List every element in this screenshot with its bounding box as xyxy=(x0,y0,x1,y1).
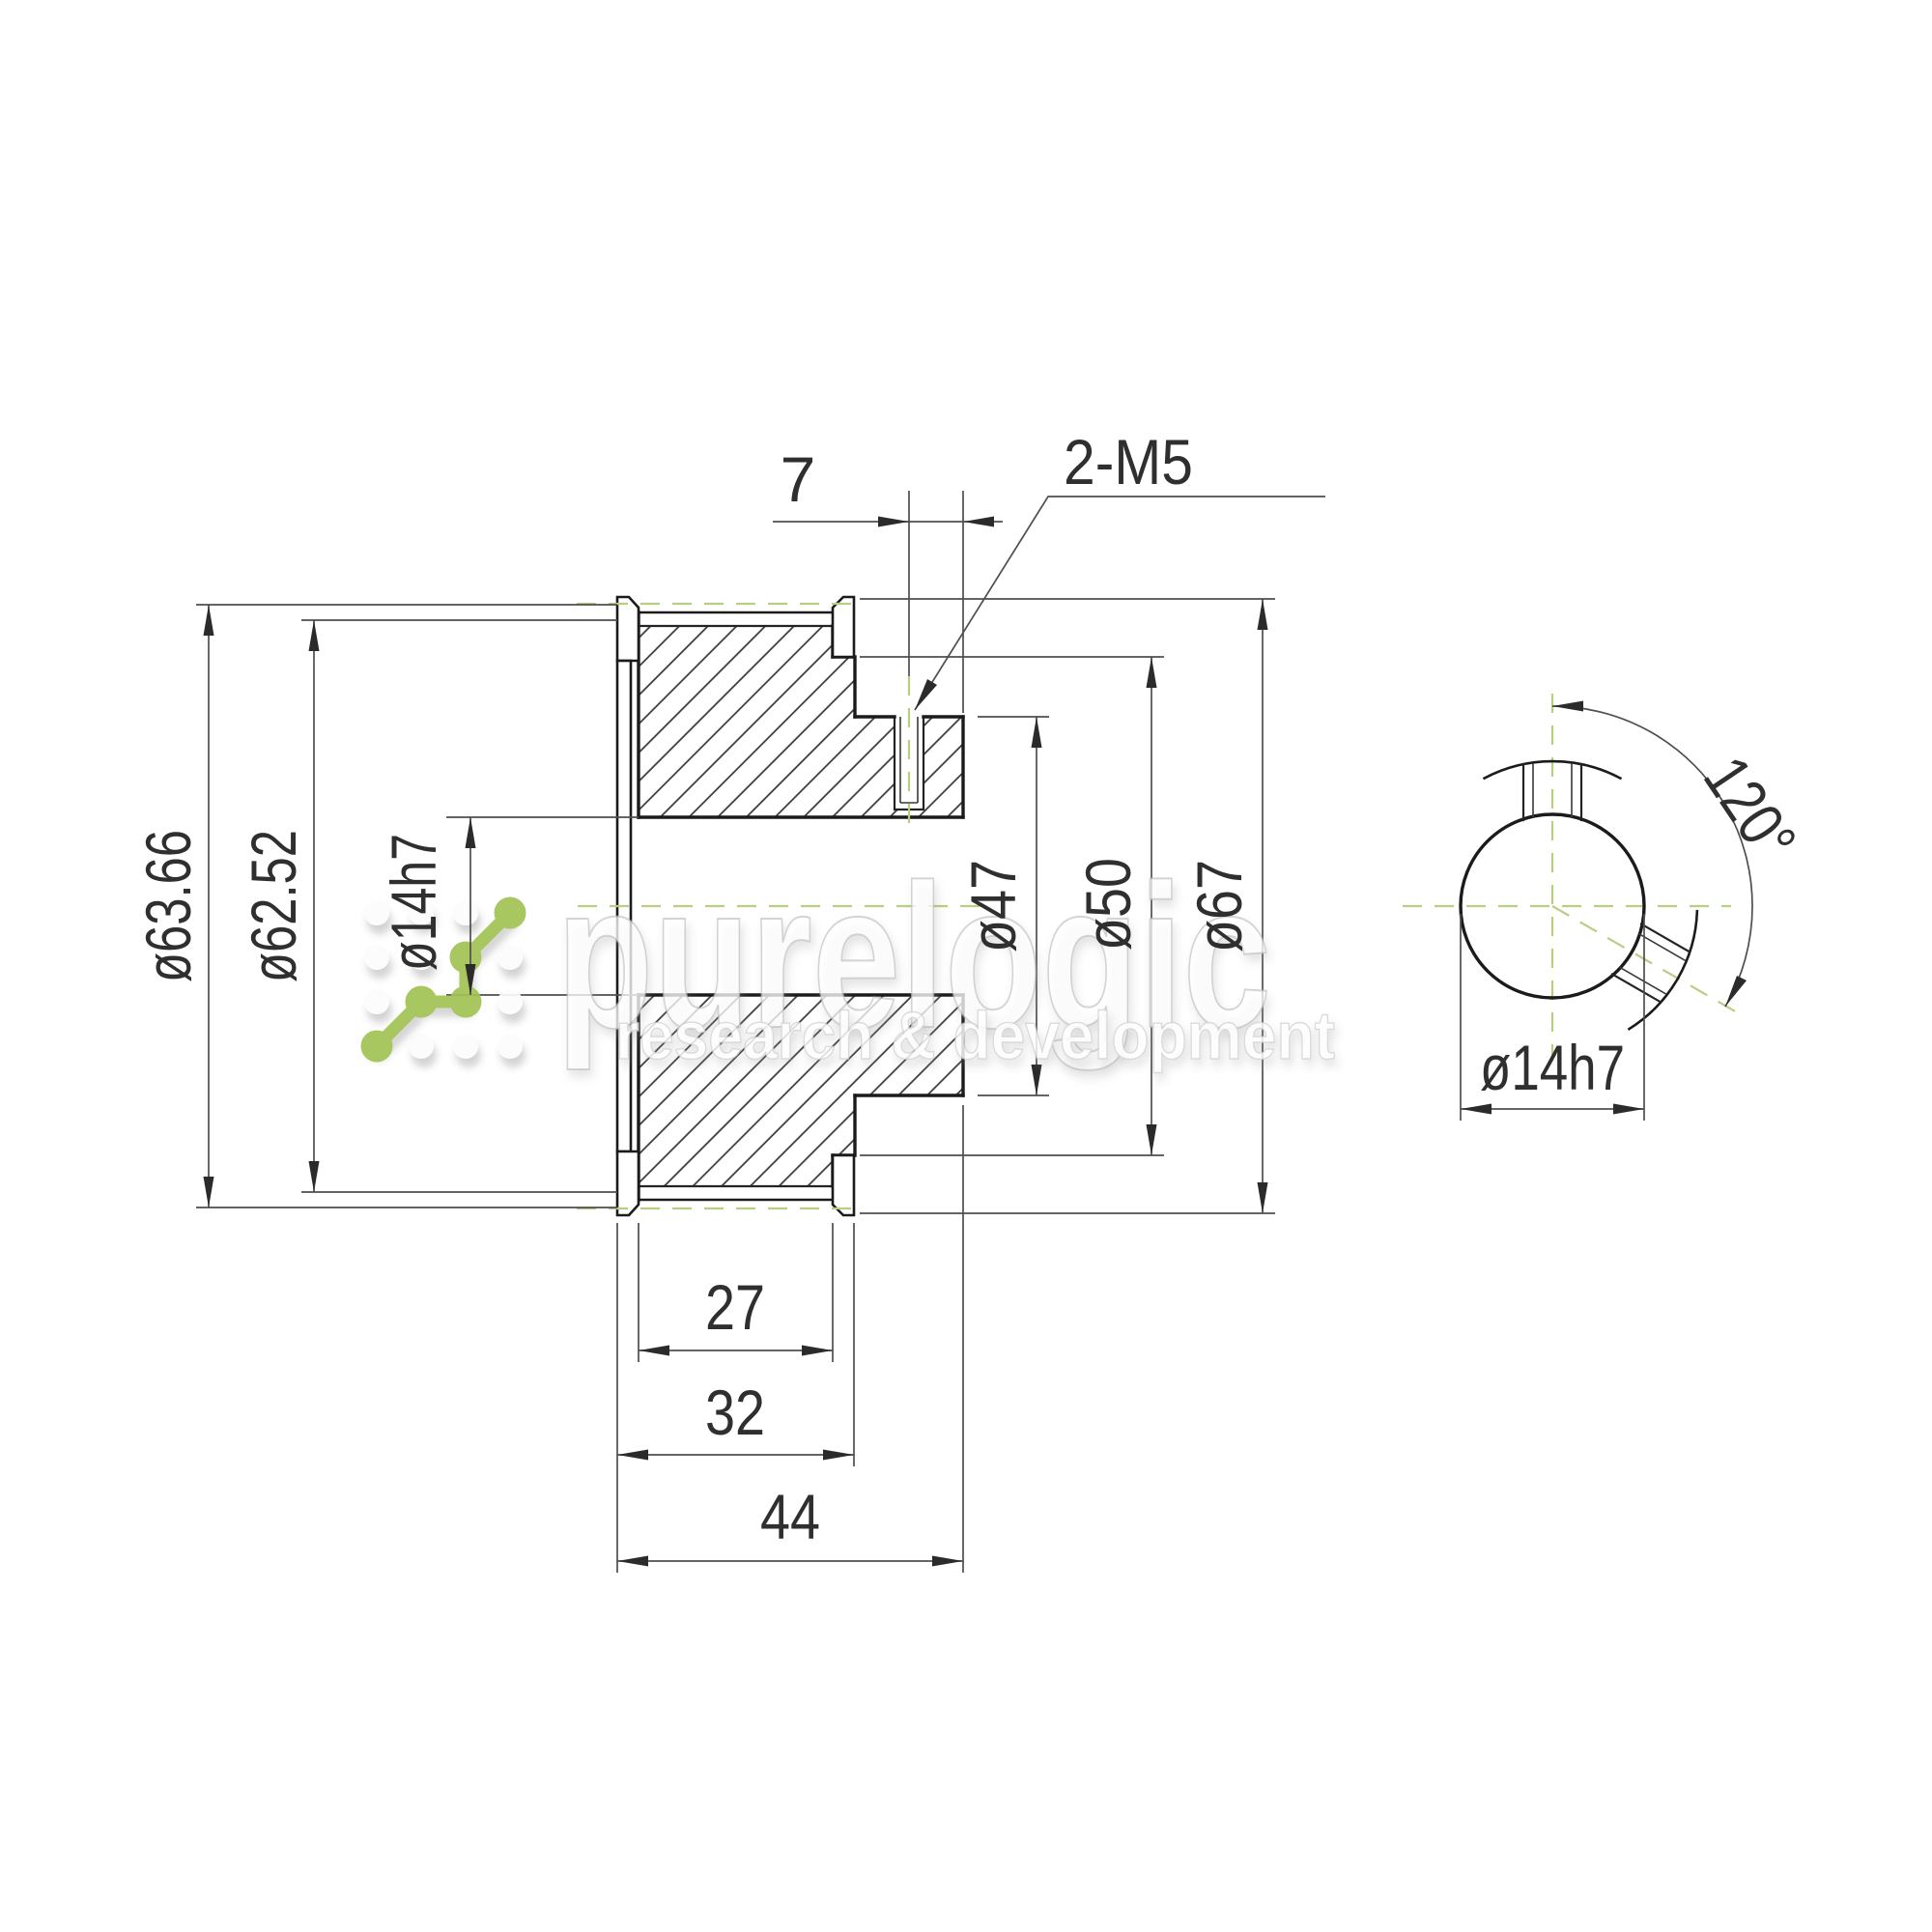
dim-setscrew-offset xyxy=(773,517,1003,527)
dim-setscrew-offset-label: 7 xyxy=(781,443,816,515)
setscrew-hole-section xyxy=(895,717,923,810)
dim-belt-width-label: 27 xyxy=(705,1271,765,1343)
dim-flange-seat-label: ø50 xyxy=(1072,858,1144,951)
technical-drawing-canvas: purelogic research & development ø63.66 … xyxy=(0,0,1932,1932)
dim-bore-label: ø14h7 xyxy=(378,834,449,971)
dim-overall-length-label: 44 xyxy=(760,1481,820,1552)
dim-belt-width xyxy=(639,1346,833,1356)
setscrew-thread-label: 2-M5 xyxy=(1064,426,1193,497)
dim-over-flanges-label: 32 xyxy=(705,1377,765,1448)
drawing-svg: purelogic research & development ø63.66 … xyxy=(0,0,1932,1932)
dim-flange-diameter-label: ø67 xyxy=(1183,860,1255,952)
dim-bore-endview-label: ø14h7 xyxy=(1480,1032,1625,1103)
dim-angle-arc xyxy=(1552,701,1752,1008)
dim-hub-diameter-label: ø47 xyxy=(957,860,1029,952)
ext-lines-top xyxy=(909,491,963,713)
watermark-tagline: research & development xyxy=(615,998,1335,1073)
leader-setscrew-thread xyxy=(915,497,1325,710)
dim-width-over-flanges xyxy=(617,1450,854,1461)
dim-tooth-od xyxy=(309,620,320,1192)
dim-tooth-od-label: ø62.52 xyxy=(238,830,309,982)
setscrew-hole-120 xyxy=(1593,891,1712,1037)
dim-overall-length xyxy=(617,1556,963,1567)
dim-pitch-diameter xyxy=(204,605,214,1207)
dim-pitch-diameter-label: ø63.66 xyxy=(132,830,204,982)
dim-angle-label: 120° xyxy=(1690,744,1810,873)
